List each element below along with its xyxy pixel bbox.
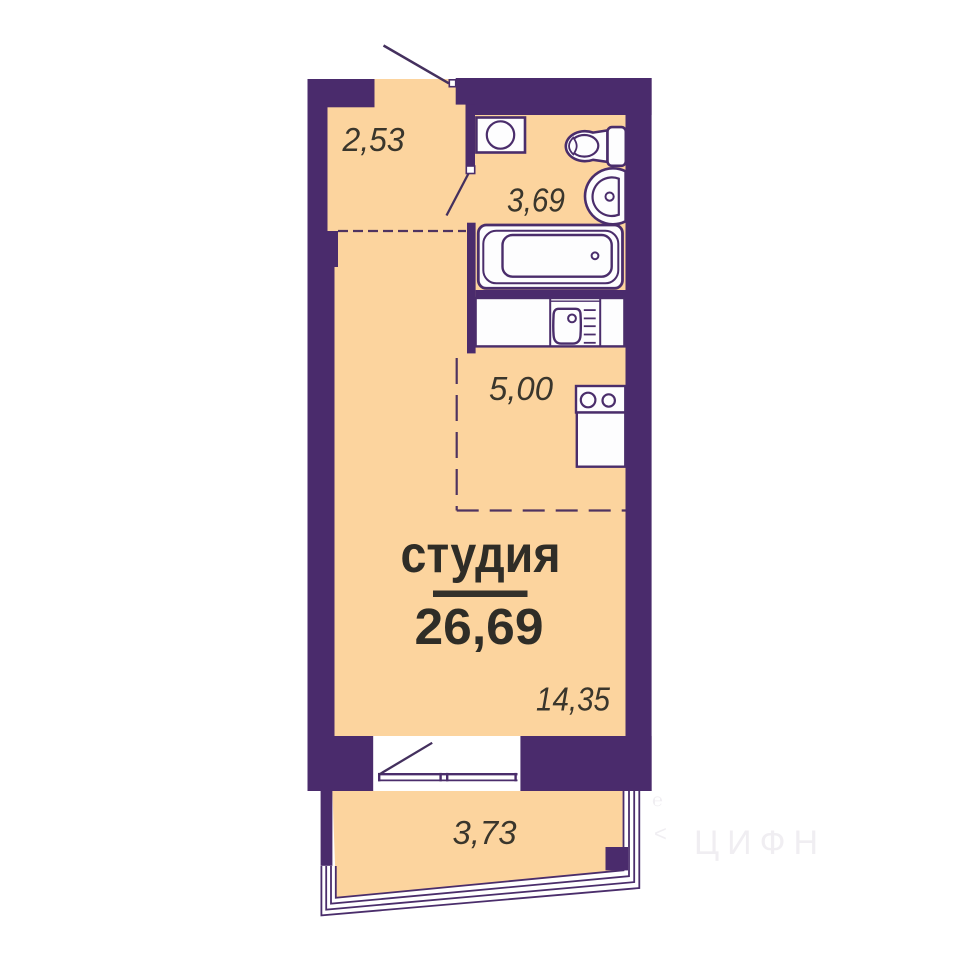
svg-text:3,69: 3,69 [507, 182, 565, 219]
svg-text:14,35: 14,35 [536, 681, 611, 718]
svg-text:5,00: 5,00 [489, 370, 554, 407]
svg-text:2,53: 2,53 [342, 121, 406, 158]
svg-text:ЦИФН: ЦИФН [694, 824, 826, 862]
svg-text:26,69: 26,69 [415, 598, 544, 655]
svg-text:℮: ℮ [652, 790, 663, 810]
svg-text:3,73: 3,73 [453, 814, 518, 851]
svg-text:студия: студия [401, 526, 561, 584]
svg-text:<: < [654, 821, 667, 846]
